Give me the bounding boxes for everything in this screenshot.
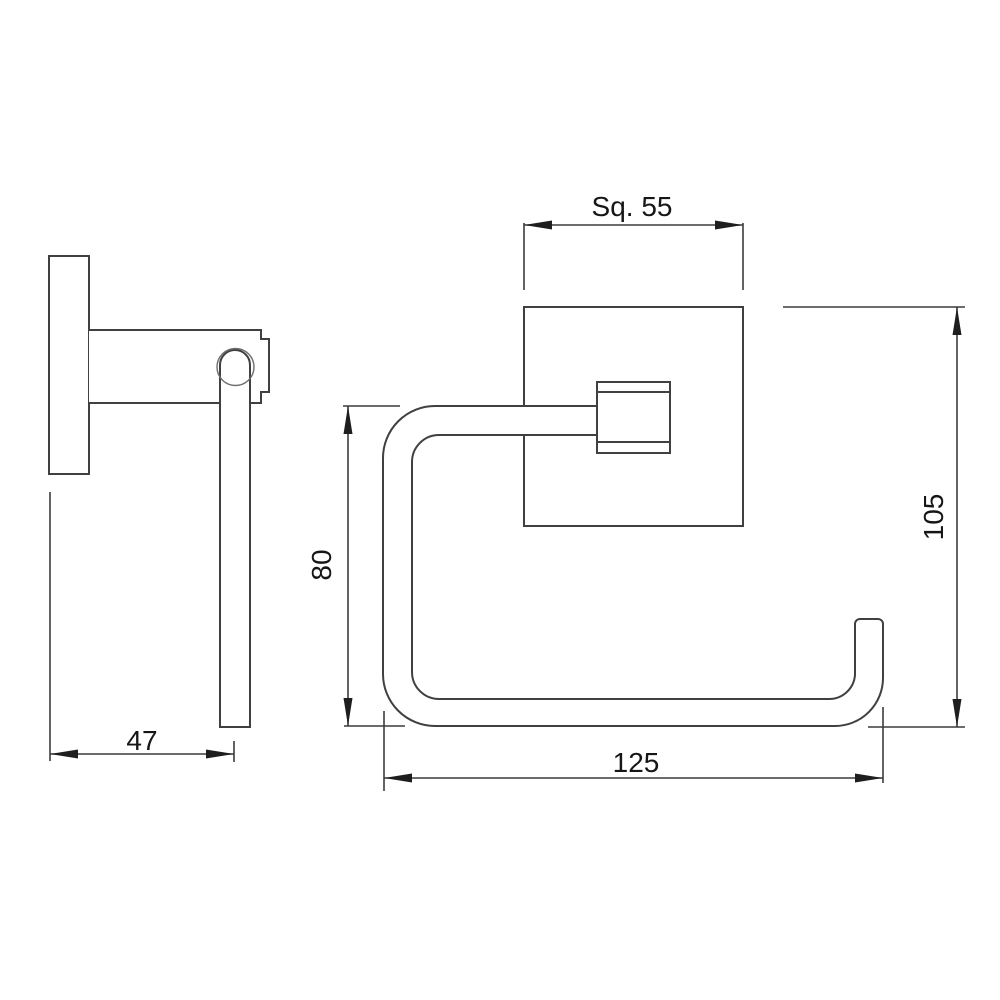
dim-label-square: Sq. 55 (592, 191, 673, 222)
drawing-canvas: 47 Sq. 55 (0, 0, 1000, 1000)
arrowhead-top (344, 406, 353, 434)
dim-label-inner-height: 80 (306, 549, 337, 580)
arrowhead-right (206, 750, 234, 759)
arrowhead-right (715, 221, 743, 230)
dim-label-depth: 47 (126, 725, 157, 756)
arrowhead-left (524, 221, 552, 230)
technical-drawing: 47 Sq. 55 (0, 0, 1000, 1000)
front-view: Sq. 55 80 105 (306, 191, 965, 791)
arrowhead-right (855, 774, 883, 783)
side-view: 47 (49, 256, 269, 762)
dim-square-55: Sq. 55 (524, 191, 743, 290)
front-mounting-block (597, 382, 670, 453)
arrowhead-left (50, 750, 78, 759)
dim-label-total-height: 105 (918, 494, 949, 541)
side-ring-bar (220, 350, 250, 727)
arrowhead-bottom (344, 698, 353, 726)
arrowhead-left (384, 774, 412, 783)
arrowhead-bottom (953, 699, 962, 727)
side-wall-plate (49, 256, 89, 474)
dim-label-width: 125 (613, 747, 660, 778)
dim-depth-47: 47 (50, 492, 234, 762)
arrowhead-top (953, 307, 962, 335)
